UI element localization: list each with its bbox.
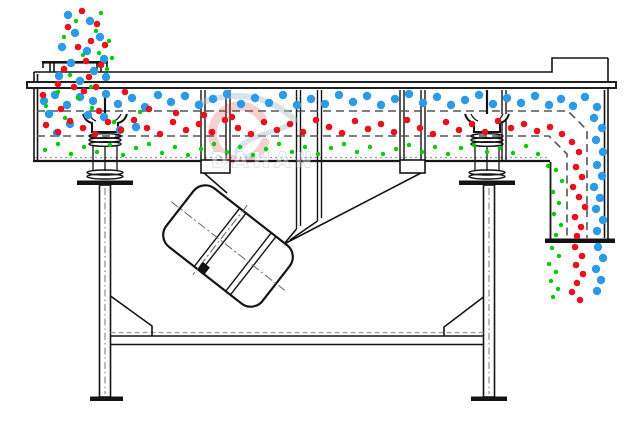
particle-layer [40, 8, 608, 304]
vibration-motor [144, 167, 312, 325]
particles-chute-fines [546, 164, 564, 237]
spring-assembly-left [77, 90, 133, 185]
screen-box [27, 58, 616, 239]
support-frame [90, 185, 507, 401]
particles-feed-stream-oversize [55, 11, 110, 85]
particles-discharge-falling-medium [569, 244, 587, 304]
particles-discharge-falling-oversize [592, 243, 607, 295]
particles-discharge-falling-fines [547, 246, 561, 299]
vibrating-screen-diagram: DAHAN ® [0, 0, 638, 428]
particles-chute-medium [570, 164, 589, 240]
